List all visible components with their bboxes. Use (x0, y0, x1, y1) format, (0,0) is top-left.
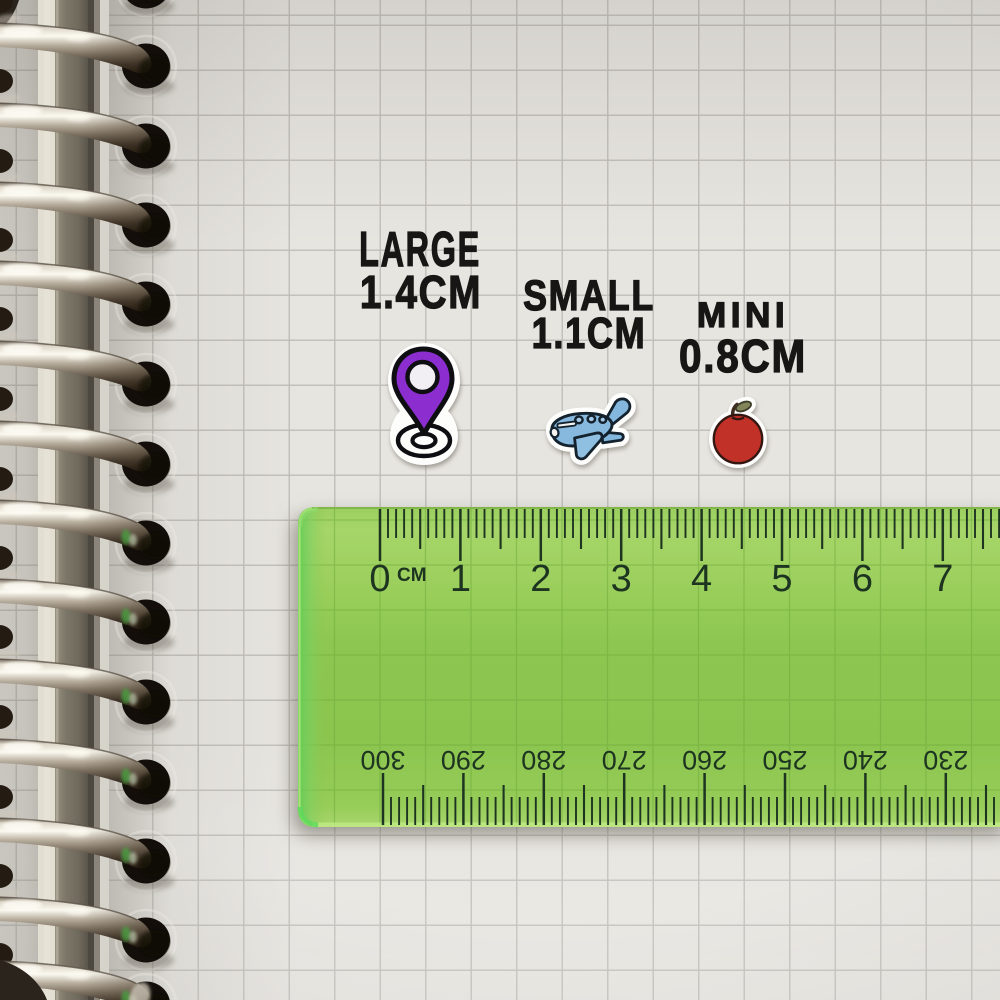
svg-text:270: 270 (602, 745, 647, 775)
svg-text:5: 5 (771, 558, 792, 600)
svg-text:7: 7 (932, 558, 953, 600)
svg-text:240: 240 (843, 745, 888, 775)
svg-text:1: 1 (450, 558, 471, 600)
svg-text:290: 290 (441, 745, 486, 775)
svg-text:2: 2 (530, 558, 551, 600)
svg-text:0: 0 (369, 558, 390, 600)
svg-text:230: 230 (923, 745, 968, 775)
svg-text:CM: CM (397, 565, 427, 586)
svg-text:4: 4 (691, 558, 712, 600)
svg-text:250: 250 (762, 745, 807, 775)
svg-text:260: 260 (682, 745, 727, 775)
svg-text:6: 6 (852, 558, 873, 600)
svg-text:280: 280 (521, 745, 566, 775)
svg-text:300: 300 (360, 745, 405, 775)
svg-text:3: 3 (611, 558, 632, 600)
